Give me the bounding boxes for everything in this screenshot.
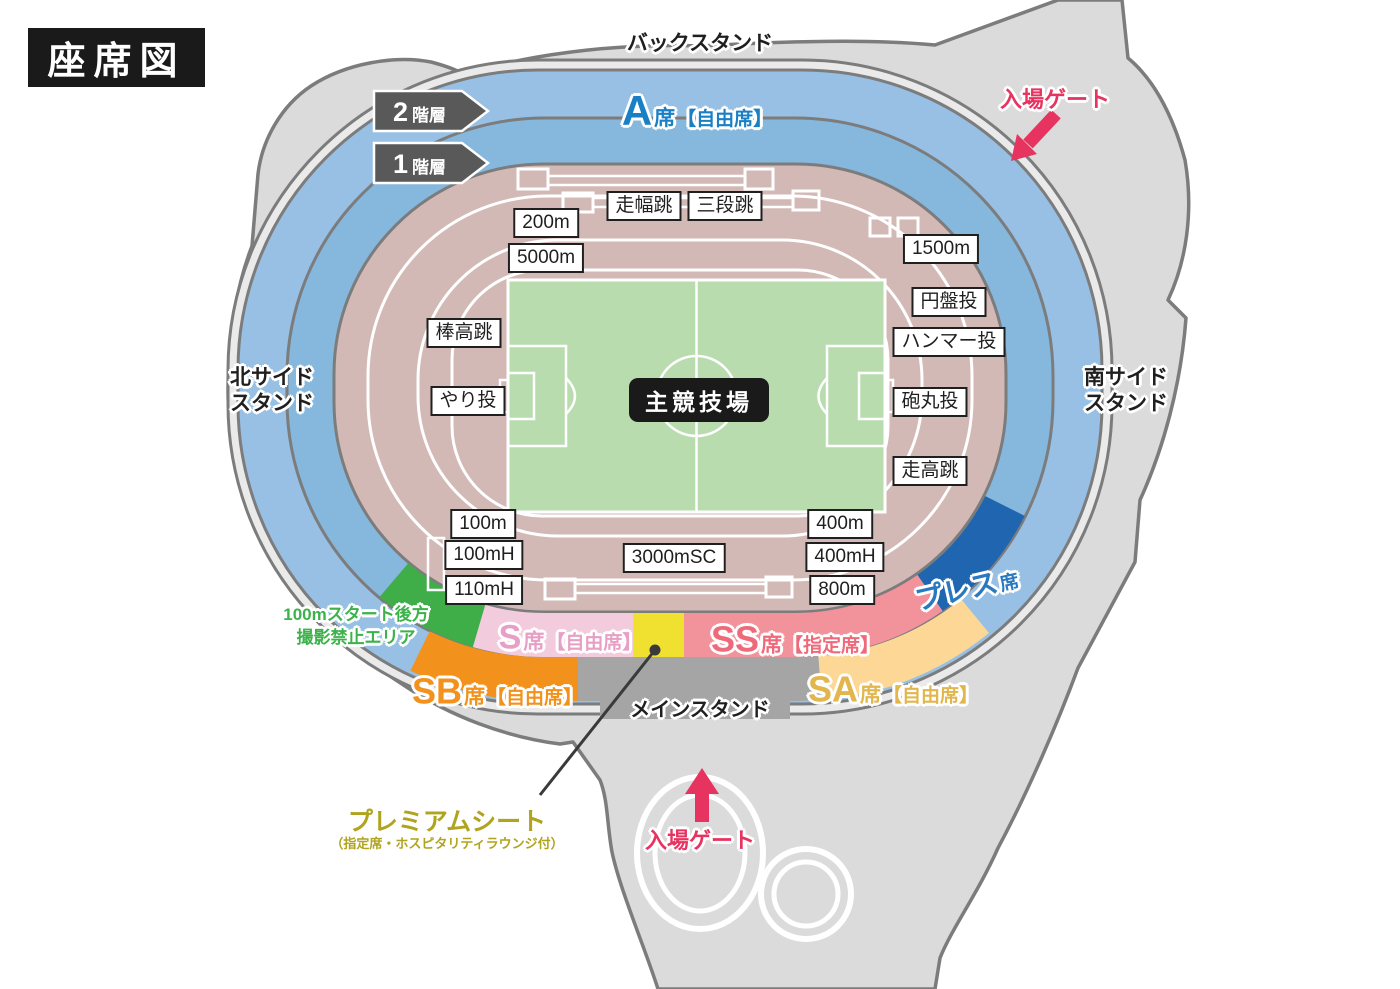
event-label: 3000mSC <box>623 543 726 573</box>
event-label: 100m <box>450 509 516 539</box>
tier2-tag: 2階層 <box>374 91 488 131</box>
no-photo-line1: 100mスタート後方 <box>283 603 428 626</box>
event-label: 1500m <box>903 234 979 264</box>
south-stand-line1: 南サイド <box>1084 365 1168 391</box>
north-stand-label: 北サイド スタンド <box>230 365 314 417</box>
seat-ss-suffix: 席 <box>761 629 782 659</box>
seat-sa-suffix: 席 <box>860 679 881 709</box>
event-label: 三段跳 <box>687 191 762 221</box>
seat-sb-type: 【自由席】 <box>487 683 582 710</box>
main-field-label-text: 主競技場 <box>629 378 769 422</box>
seat-sb-label: SB席【自由席】 <box>412 674 582 711</box>
seat-s-label: S席【自由席】 <box>499 621 642 656</box>
event-label: 100mH <box>444 540 523 570</box>
premium-seat-label: プレミアムシート （指定席・ホスピタリティラウンジ付） <box>330 808 563 852</box>
seat-sa-type: 【自由席】 <box>883 681 978 708</box>
no-photo-line2: 撮影禁止エリア <box>283 626 428 649</box>
seat-ss-label: SS席【指定席】 <box>711 622 879 659</box>
page-title: 座席図 <box>28 28 205 87</box>
event-label: 110mH <box>445 575 523 605</box>
event-label: 5000m <box>508 243 584 273</box>
south-stand-line2: スタンド <box>1084 391 1168 417</box>
seat-sb-suffix: 席 <box>464 681 485 711</box>
seat-a-suffix: 席 <box>654 102 675 132</box>
event-label: やり投 <box>430 386 505 416</box>
event-label: 砲丸投 <box>892 387 967 417</box>
south-stand-label: 南サイド スタンド <box>1084 365 1168 417</box>
event-label: 走幅跳 <box>606 191 681 221</box>
no-photo-area-label: 100mスタート後方 撮影禁止エリア <box>283 603 428 649</box>
event-label: 800m <box>809 575 875 605</box>
back-stand-label: バックスタンド <box>627 31 773 57</box>
page-title-text: 座席図 <box>47 30 185 85</box>
north-stand-line2: スタンド <box>230 391 314 417</box>
seat-a-code: A <box>622 90 652 132</box>
event-label: 円盤投 <box>911 287 986 317</box>
event-label: 200m <box>513 208 579 238</box>
seat-s-suffix: 席 <box>523 626 544 656</box>
entrance-gate-top-label: 入場ゲート <box>1000 82 1110 114</box>
entrance-gate-bottom-label: 入場ゲート <box>645 823 755 855</box>
premium-seat-title: プレミアムシート <box>330 808 563 836</box>
event-label: 走高跳 <box>892 456 967 486</box>
main-field-label: 主競技場 <box>629 378 769 422</box>
seat-s-type: 【自由席】 <box>546 628 641 655</box>
seat-sa-code: SA <box>808 672 858 708</box>
main-stand-label: メインスタンド <box>630 697 770 723</box>
north-stand-line1: 北サイド <box>230 365 314 391</box>
event-label: 棒高跳 <box>426 318 501 348</box>
seat-sa-label: SA席【自由席】 <box>808 672 978 709</box>
event-label: 400m <box>807 509 873 539</box>
seat-ss-type: 【指定席】 <box>784 631 879 658</box>
seat-a-type: 【自由席】 <box>677 104 772 131</box>
seat-sb-code: SB <box>412 674 462 710</box>
stadium-seating-map: 2階層 1階層 座席図 バックスタンド 北サイド スタンド 南サイド スタンド … <box>0 0 1400 989</box>
seat-s-code: S <box>499 621 522 655</box>
event-label: ハンマー投 <box>892 327 1005 357</box>
premium-seat-subtitle: （指定席・ホスピタリティラウンジ付） <box>330 836 563 852</box>
tier1-tag: 1階層 <box>374 143 488 183</box>
seat-ss-code: SS <box>711 622 759 658</box>
seat-a-label: A席【自由席】 <box>622 90 772 132</box>
event-label: 400mH <box>805 542 884 572</box>
